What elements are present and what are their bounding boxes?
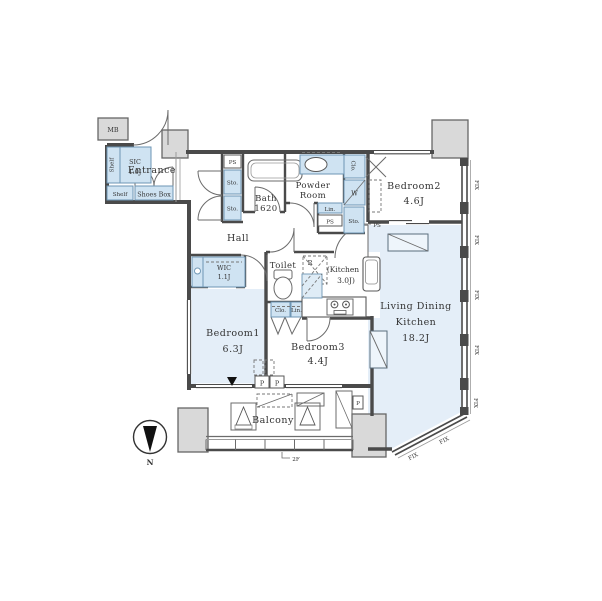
kitchen-label-2: 3.0J)	[337, 276, 355, 285]
storage-label-2: Sto.	[227, 207, 238, 213]
column-top-right	[432, 120, 468, 158]
pillar-label-1: P	[260, 380, 265, 388]
powder-room-door	[290, 203, 314, 227]
wic-box	[203, 257, 245, 287]
fix-label-2: FIX	[473, 235, 479, 245]
bedroom1-size: 6.3J	[223, 344, 244, 355]
storage-label-3: Sto.	[348, 219, 359, 225]
floor-mark-label: 2F	[292, 457, 300, 463]
bedroom2-size: 4.6J	[404, 196, 425, 207]
kitchen-label-1: (Kitchen	[327, 265, 359, 274]
living-size: 18.2J	[402, 333, 429, 344]
bedroom2-label: Bedroom2	[387, 181, 441, 192]
ps-label-2: PS	[326, 220, 334, 226]
compass-north-label: N	[147, 458, 154, 467]
fix-label-7: FIX	[408, 452, 420, 462]
compass: N	[134, 421, 167, 468]
closet-label-v: Clo.	[350, 160, 356, 171]
column-top-left	[162, 130, 188, 158]
ac-unit-2-triangle	[300, 407, 315, 425]
wic-label: WIC	[217, 264, 231, 272]
refrigerator-label: R	[308, 259, 313, 267]
floor-plan: N Entrance Hall Bath 1620 Powder Room To…	[0, 0, 602, 601]
floor-plan-page: N Entrance Hall Bath 1620 Powder Room To…	[0, 0, 602, 601]
linen-label-2: Lin.	[291, 308, 302, 314]
washer-label: W	[351, 190, 358, 198]
fix-label-4: FIX	[473, 345, 479, 355]
bedroom1-label: Bedroom1	[206, 328, 260, 339]
fix-label-5: FIX	[472, 398, 478, 408]
sic-size: 1.0J	[129, 168, 142, 176]
fix-label-1: FIX	[473, 180, 479, 190]
balcony-tall-diag	[336, 391, 352, 428]
fix-label-6: FIX	[439, 436, 451, 446]
pillar-label-3: P	[356, 401, 360, 407]
burner-left-dot	[334, 304, 336, 306]
bedroom3-label: Bedroom3	[291, 342, 345, 353]
bath-size: 1620	[254, 204, 277, 214]
linen-label-1: Lin.	[325, 207, 336, 213]
ps-label-3: PS	[373, 223, 381, 229]
wic-pole-symbol	[195, 268, 201, 274]
toilet-bowl	[274, 277, 292, 299]
bedroom3-door	[307, 318, 330, 341]
balcony-block-left	[178, 408, 208, 452]
ac-unit-1-triangle	[236, 407, 251, 425]
shoes-box-label: Shoes Box	[137, 191, 171, 199]
storage-label-1: Sto.	[227, 181, 238, 187]
storage-doors	[198, 171, 222, 220]
toilet-label: Toilet	[270, 261, 297, 271]
bedroom3-closet-bifold	[271, 317, 301, 334]
shelf-label-v: Shelf	[110, 157, 116, 173]
bedroom2-dashed-shaft	[369, 180, 381, 212]
wash-basin	[305, 158, 327, 172]
shelf-label-h: Shelf	[113, 192, 129, 198]
hall-label: Hall	[227, 233, 249, 244]
bedroom2-closet-bifold2	[376, 157, 386, 177]
ps-label-1: PS	[229, 160, 237, 166]
bedroom3-size: 4.4J	[308, 356, 329, 367]
floor-mark-bracket	[282, 452, 290, 458]
balcony-dashed-diag	[257, 394, 292, 407]
bath-label: Bath	[255, 194, 277, 204]
balcony-railing	[206, 437, 353, 459]
living-label-2: Kitchen	[396, 317, 437, 328]
pillar-label-2: P	[275, 380, 280, 388]
wic-size: 1.1J	[218, 273, 231, 281]
ac-unit-1-base	[235, 425, 252, 429]
sic-label: SIC	[129, 158, 141, 166]
fix-label-3: FIX	[473, 290, 479, 300]
meter-box-label: MB	[107, 126, 119, 134]
powder-label-2: Room	[300, 191, 326, 201]
balcony-label: Balcony	[252, 415, 294, 426]
powder-label-1: Powder	[296, 181, 331, 191]
burner-right-dot	[345, 304, 347, 306]
bathtub-inner	[251, 163, 299, 178]
toilet-door	[270, 228, 294, 252]
closet-label-2: Clo.	[275, 308, 286, 314]
living-label-1: Living Dining	[380, 301, 451, 312]
